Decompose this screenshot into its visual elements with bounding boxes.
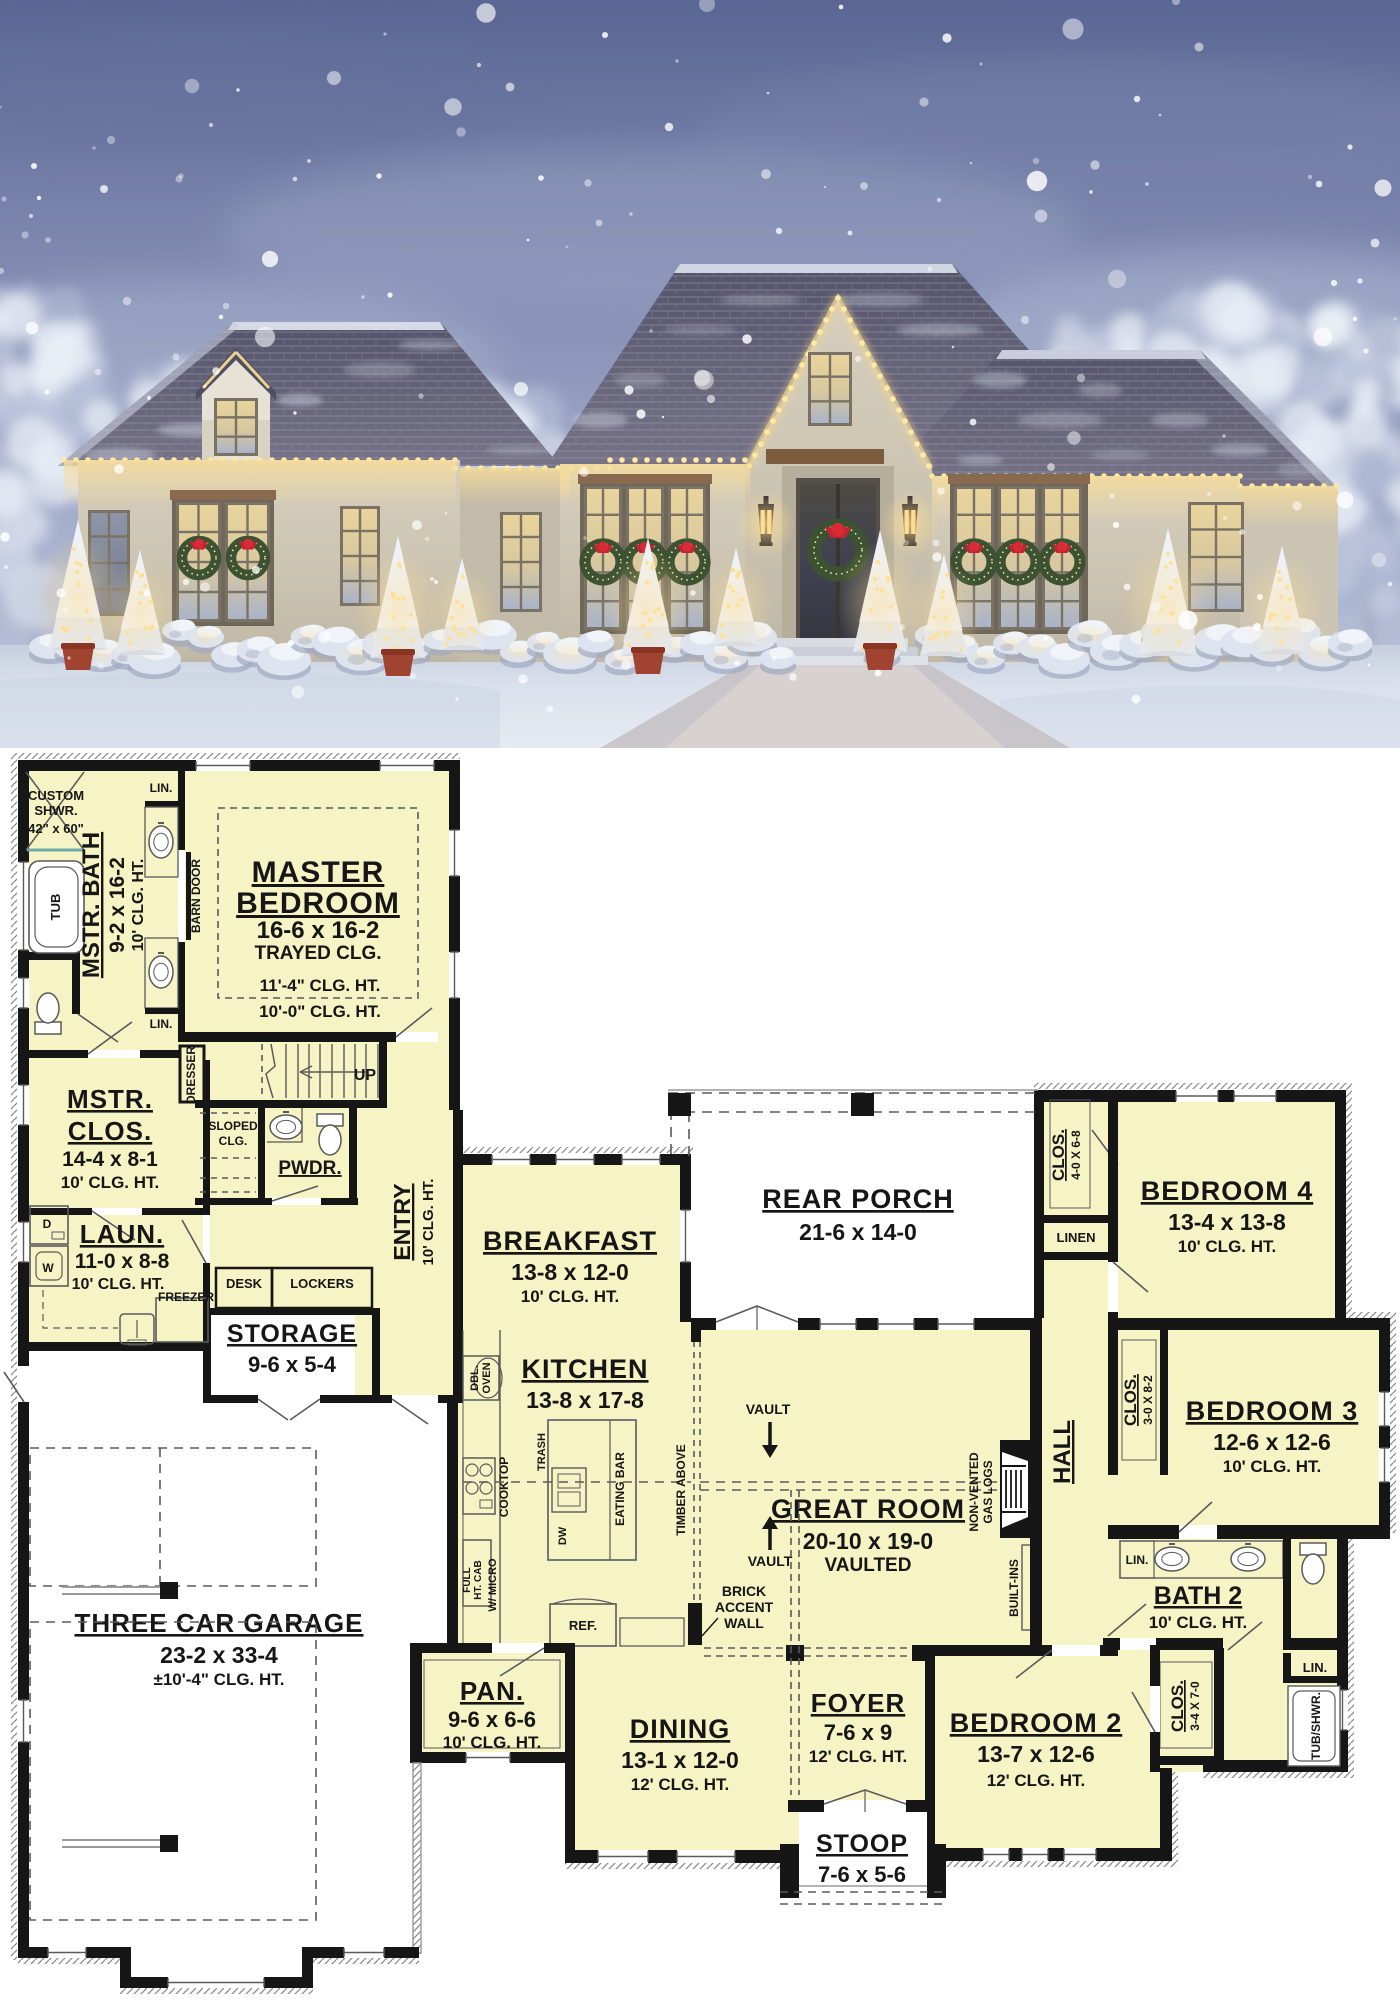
svg-text:EATING BAR: EATING BAR [613, 1452, 627, 1526]
svg-text:TRAYED CLG.: TRAYED CLG. [254, 943, 381, 964]
svg-text:ACCENT: ACCENT [715, 1599, 774, 1615]
svg-text:REF.: REF. [569, 1618, 597, 1633]
svg-text:STORAGE: STORAGE [227, 1320, 357, 1348]
svg-text:BEDROOM: BEDROOM [236, 887, 400, 920]
svg-text:THREE CAR GARAGE: THREE CAR GARAGE [74, 1608, 363, 1638]
svg-text:10' CLG. HT.: 10' CLG. HT. [61, 1173, 160, 1192]
svg-text:9-6 x 6-6: 9-6 x 6-6 [448, 1707, 536, 1732]
svg-text:3-4 X 7-0: 3-4 X 7-0 [1188, 1681, 1202, 1731]
svg-text:42" x 60": 42" x 60" [28, 821, 84, 836]
svg-text:BUILT-INS: BUILT-INS [1007, 1559, 1021, 1617]
svg-text:TRASH: TRASH [536, 1433, 548, 1471]
svg-text:13-4 x 13-8: 13-4 x 13-8 [1168, 1209, 1286, 1235]
svg-text:21-6 x 14-0: 21-6 x 14-0 [799, 1219, 917, 1245]
svg-text:MSTR.: MSTR. [67, 1084, 153, 1114]
svg-text:SHWR.: SHWR. [34, 803, 77, 818]
svg-text:NON-VENTED: NON-VENTED [967, 1452, 981, 1532]
svg-text:10' CLG. HT.: 10' CLG. HT. [420, 1179, 437, 1266]
svg-text:10' CLG. HT.: 10' CLG. HT. [443, 1733, 542, 1752]
svg-text:TUB/SHWR.: TUB/SHWR. [1309, 1692, 1323, 1760]
svg-text:3-0 X 8-2: 3-0 X 8-2 [1141, 1375, 1155, 1425]
svg-text:MASTER: MASTER [252, 856, 385, 889]
svg-text:12-6 x 12-6: 12-6 x 12-6 [1213, 1429, 1331, 1455]
svg-text:BATH 2: BATH 2 [1154, 1582, 1242, 1610]
svg-text:CLOS.: CLOS. [1049, 1129, 1068, 1181]
svg-text:VAULT: VAULT [746, 1401, 791, 1417]
svg-text:DESK: DESK [226, 1276, 263, 1291]
svg-text:BEDROOM 3: BEDROOM 3 [1186, 1396, 1359, 1426]
svg-text:KITCHEN: KITCHEN [522, 1354, 649, 1384]
svg-text:GREAT ROOM: GREAT ROOM [771, 1494, 965, 1524]
svg-text:TUB: TUB [48, 894, 63, 921]
svg-text:CUSTOM: CUSTOM [28, 788, 84, 803]
svg-text:7-6 x 5-6: 7-6 x 5-6 [818, 1862, 906, 1887]
svg-text:LINEN: LINEN [1057, 1230, 1096, 1245]
svg-text:13-1 x 12-0: 13-1 x 12-0 [621, 1747, 739, 1773]
svg-text:11-0 x 8-8: 11-0 x 8-8 [75, 1250, 170, 1273]
svg-text:LOCKERS: LOCKERS [290, 1276, 354, 1291]
svg-text:HT. CAB: HT. CAB [473, 1560, 484, 1599]
svg-text:PWDR.: PWDR. [278, 1158, 341, 1179]
svg-text:FREEZER: FREEZER [158, 1290, 214, 1304]
svg-text:LIN.: LIN. [150, 1017, 173, 1031]
svg-text:VAULTED: VAULTED [825, 1555, 912, 1576]
svg-text:D: D [43, 1217, 52, 1231]
svg-text:12' CLG. HT.: 12' CLG. HT. [631, 1775, 730, 1794]
svg-text:CLOS.: CLOS. [1121, 1374, 1140, 1426]
svg-text:4-0 X 6-8: 4-0 X 6-8 [1069, 1130, 1083, 1180]
svg-text:16-6 x 16-2: 16-6 x 16-2 [257, 917, 380, 944]
svg-text:10' CLG. HT.: 10' CLG. HT. [1223, 1457, 1322, 1476]
svg-text:10' CLG. HT.: 10' CLG. HT. [72, 1276, 165, 1293]
svg-text:DRESSER: DRESSER [184, 1046, 198, 1104]
svg-text:10' CLG. HT.: 10' CLG. HT. [1178, 1237, 1277, 1256]
svg-text:BRICK: BRICK [722, 1583, 766, 1599]
svg-text:BEDROOM 2: BEDROOM 2 [950, 1708, 1123, 1738]
svg-text:VAULT: VAULT [748, 1553, 793, 1569]
svg-text:13-8 x 12-0: 13-8 x 12-0 [511, 1259, 629, 1285]
svg-text:9-2 x 16-2: 9-2 x 16-2 [106, 857, 129, 953]
svg-text:FOYER: FOYER [811, 1688, 906, 1718]
svg-text:DBL.: DBL. [469, 1365, 481, 1391]
svg-text:SLOPED: SLOPED [208, 1119, 258, 1133]
svg-text:ENTRY: ENTRY [389, 1183, 415, 1260]
svg-text:LAUN.: LAUN. [80, 1219, 164, 1249]
svg-text:COOKTOP: COOKTOP [497, 1457, 511, 1517]
svg-text:10' CLG. HT.: 10' CLG. HT. [521, 1287, 620, 1306]
svg-text:STOOP: STOOP [816, 1830, 908, 1858]
svg-text:DW: DW [557, 1526, 569, 1545]
svg-text:W/ MICRO: W/ MICRO [487, 1558, 499, 1612]
svg-text:7-6 x 9: 7-6 x 9 [824, 1720, 893, 1745]
svg-text:OVEN: OVEN [481, 1362, 493, 1393]
svg-text:BREAKFAST: BREAKFAST [483, 1226, 657, 1256]
svg-text:W: W [42, 1261, 54, 1275]
svg-text:LIN.: LIN. [150, 781, 173, 795]
svg-text:BARN DOOR: BARN DOOR [189, 859, 203, 933]
svg-text:11'-4" CLG. HT.: 11'-4" CLG. HT. [260, 976, 381, 995]
svg-text:14-4 x 8-1: 14-4 x 8-1 [62, 1148, 158, 1171]
svg-text:10' CLG. HT.: 10' CLG. HT. [1149, 1613, 1248, 1632]
svg-text:12' CLG. HT.: 12' CLG. HT. [809, 1747, 908, 1766]
svg-text:FULL: FULL [462, 1567, 473, 1593]
svg-text:UP: UP [354, 1067, 377, 1084]
svg-text:10'-0" CLG. HT.: 10'-0" CLG. HT. [259, 1002, 381, 1021]
svg-text:CLOS.: CLOS. [1168, 1680, 1187, 1732]
svg-text:9-6 x 5-4: 9-6 x 5-4 [248, 1352, 337, 1377]
svg-text:HALL: HALL [1049, 1420, 1076, 1484]
svg-text:LIN.: LIN. [1303, 1660, 1328, 1675]
svg-text:REAR PORCH: REAR PORCH [762, 1184, 954, 1214]
svg-text:TIMBER ABOVE: TIMBER ABOVE [674, 1444, 688, 1536]
svg-text:23-2 x 33-4: 23-2 x 33-4 [160, 1642, 278, 1668]
svg-text:20-10 x 19-0: 20-10 x 19-0 [803, 1528, 933, 1554]
svg-text:DINING: DINING [630, 1714, 731, 1744]
svg-text:13-7 x 12-6: 13-7 x 12-6 [977, 1741, 1095, 1767]
svg-text:BEDROOM 4: BEDROOM 4 [1141, 1176, 1314, 1206]
svg-text:GAS LOGS: GAS LOGS [981, 1460, 995, 1523]
svg-text:±10'-4" CLG. HT.: ±10'-4" CLG. HT. [153, 1670, 284, 1689]
svg-text:LIN.: LIN. [1126, 1553, 1149, 1567]
svg-text:CLOS.: CLOS. [68, 1116, 152, 1146]
svg-text:PAN.: PAN. [460, 1676, 524, 1706]
svg-text:12' CLG. HT.: 12' CLG. HT. [987, 1771, 1086, 1790]
svg-text:WALL: WALL [724, 1615, 764, 1631]
svg-text:13-8 x 17-8: 13-8 x 17-8 [526, 1387, 644, 1413]
svg-text:CLG.: CLG. [219, 1134, 248, 1148]
svg-text:MSTR. BATH: MSTR. BATH [78, 832, 105, 978]
